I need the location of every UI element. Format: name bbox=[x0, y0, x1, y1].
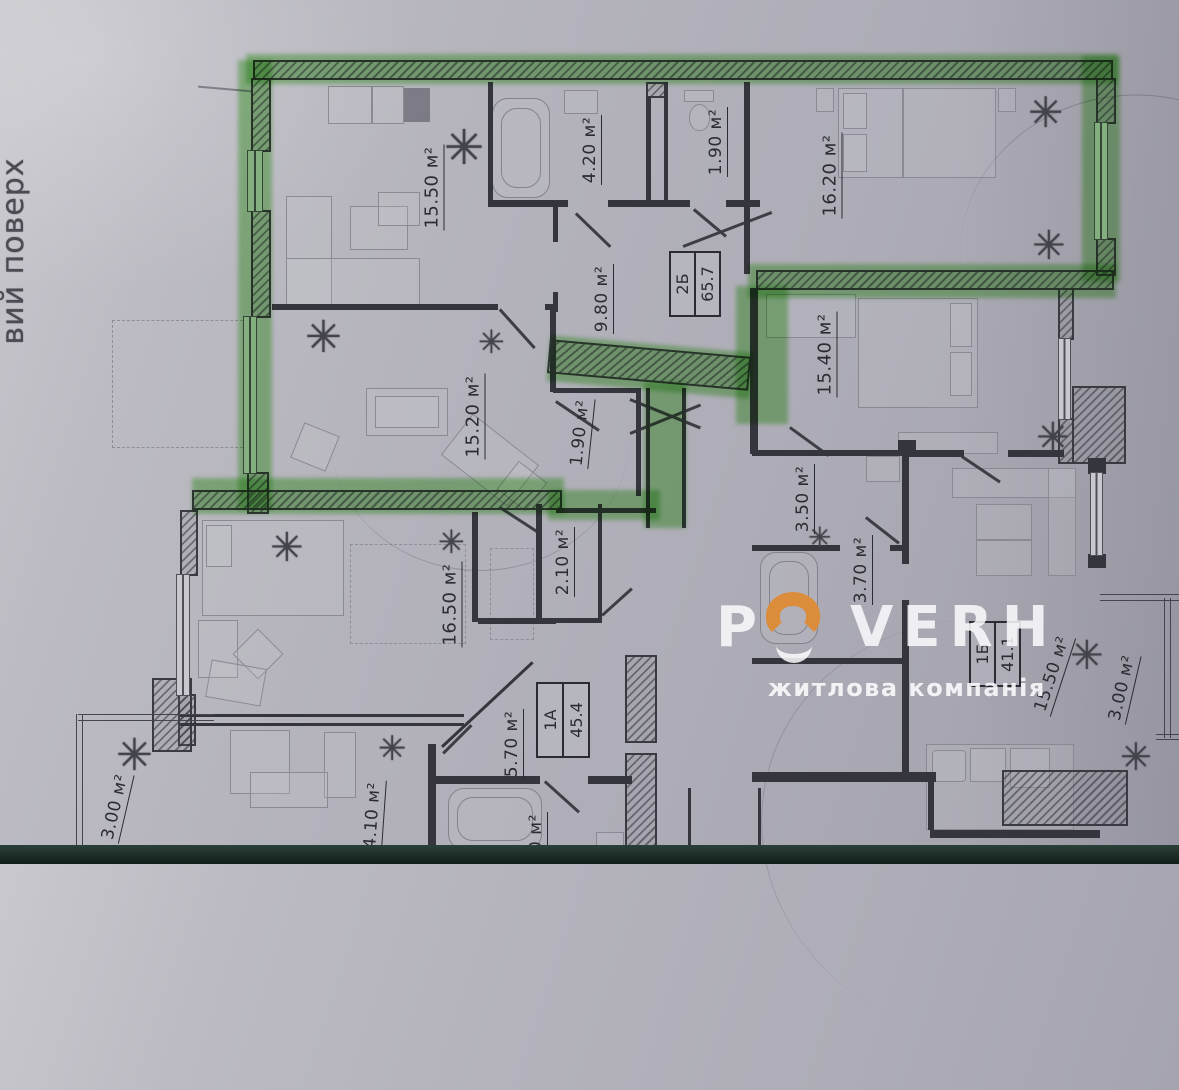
door-line bbox=[544, 780, 580, 813]
pillow bbox=[950, 303, 972, 347]
room-label: 15.50 м² bbox=[422, 128, 443, 248]
wall bbox=[1088, 554, 1106, 568]
room-label: 9.80 м² bbox=[592, 249, 612, 349]
plant-icon: ✳ bbox=[305, 316, 342, 360]
balcony-outline-dashed bbox=[112, 320, 248, 448]
apartment-area: 65.7 bbox=[696, 253, 719, 315]
wall bbox=[902, 442, 909, 564]
room-label: 16.20 м² bbox=[820, 116, 841, 236]
corner-sofa bbox=[1048, 468, 1076, 576]
pillow bbox=[843, 134, 867, 172]
wall bbox=[180, 714, 464, 726]
apartment-unit: 1А bbox=[538, 684, 564, 756]
wall bbox=[488, 82, 493, 204]
pillow bbox=[950, 352, 972, 396]
wall bbox=[898, 440, 916, 456]
balcony-railing bbox=[1156, 734, 1179, 740]
green-highlight bbox=[246, 54, 1118, 84]
armchair bbox=[378, 192, 420, 226]
nightstand bbox=[998, 88, 1016, 112]
side-caption: вий поверх bbox=[0, 86, 32, 416]
wall bbox=[625, 655, 657, 743]
balcony-railing bbox=[78, 714, 214, 721]
wall bbox=[1072, 386, 1126, 464]
room-label: 15.40 м² bbox=[815, 295, 836, 415]
wall bbox=[598, 504, 602, 622]
kitchen-stove bbox=[404, 88, 430, 122]
apartment-area: 45.4 bbox=[564, 684, 588, 756]
room-label: 1.90 м² bbox=[706, 92, 726, 192]
pillow bbox=[843, 93, 867, 129]
room-label: 3.00 м² bbox=[94, 756, 136, 858]
blanket-line bbox=[902, 89, 904, 177]
wall bbox=[478, 618, 556, 624]
room-label: 5.70 м² bbox=[502, 694, 522, 794]
floor-plan-photo: { "photo": { "side_caption": "вий поверх… bbox=[0, 0, 1179, 864]
wall bbox=[930, 830, 1100, 838]
balcony-railing bbox=[76, 714, 83, 864]
plant-icon: ✳ bbox=[1028, 92, 1063, 134]
watermark-letters: VERH bbox=[850, 600, 1058, 656]
green-highlight bbox=[192, 478, 564, 514]
apartment-unit: 2Б bbox=[671, 253, 696, 315]
door-line bbox=[575, 212, 611, 247]
plant-icon: ✳ bbox=[478, 326, 505, 358]
wall bbox=[472, 512, 478, 622]
kitchen-sink bbox=[372, 86, 404, 124]
plant-icon: ✳ bbox=[378, 732, 407, 766]
room-label: 15.20 м² bbox=[463, 357, 484, 477]
wall bbox=[536, 504, 542, 622]
plant-icon: ✳ bbox=[444, 124, 484, 172]
room-label: 2.10 м² bbox=[553, 512, 573, 612]
watermark-tagline: житлова компанія bbox=[768, 674, 1046, 702]
plant-icon: ✳ bbox=[1036, 418, 1070, 458]
wall bbox=[646, 96, 651, 204]
window bbox=[1090, 472, 1103, 556]
balcony-railing bbox=[1164, 598, 1171, 738]
plant-icon: ✳ bbox=[1070, 636, 1104, 676]
wall bbox=[1002, 770, 1128, 826]
pillow bbox=[206, 525, 232, 567]
wall bbox=[752, 772, 936, 782]
wall bbox=[928, 780, 934, 830]
wall bbox=[553, 206, 558, 242]
wall bbox=[272, 304, 498, 310]
sofa bbox=[286, 258, 420, 306]
furniture bbox=[250, 772, 328, 808]
wall bbox=[752, 450, 908, 456]
plant-icon: ✳ bbox=[1032, 226, 1066, 266]
furniture bbox=[324, 732, 356, 798]
green-highlight bbox=[1082, 56, 1120, 282]
green-highlight bbox=[748, 264, 1116, 298]
wall bbox=[744, 82, 750, 274]
wall bbox=[608, 200, 690, 207]
room-label: 16.50 м² bbox=[440, 545, 461, 665]
green-highlight bbox=[238, 60, 272, 510]
paper-highlight bbox=[0, 0, 420, 300]
apartment-tag: 1А 45.4 bbox=[536, 682, 590, 758]
wall bbox=[553, 388, 641, 393]
wall bbox=[664, 82, 668, 204]
wall bbox=[726, 200, 760, 207]
door-line bbox=[601, 588, 632, 617]
wall bbox=[180, 510, 198, 576]
window bbox=[1058, 338, 1071, 420]
bathtub-inner bbox=[457, 797, 533, 841]
kitchen-counter bbox=[328, 86, 372, 124]
watermark-logo-o-icon bbox=[766, 592, 820, 638]
room-label: 4.20 м² bbox=[580, 100, 600, 200]
wall bbox=[588, 776, 632, 784]
bathtub-inner bbox=[501, 108, 541, 188]
washbasin bbox=[866, 456, 900, 482]
room-label: 3.50 м² bbox=[793, 449, 813, 549]
door-line bbox=[683, 211, 773, 247]
photo-edge bbox=[0, 845, 1179, 864]
wall bbox=[636, 392, 641, 496]
apartment-tag: 2Б 65.7 bbox=[669, 251, 721, 317]
door-line bbox=[693, 208, 727, 237]
nightstand bbox=[816, 88, 834, 112]
watermark-letter-p: P bbox=[716, 600, 757, 656]
plant-icon: ✳ bbox=[270, 528, 304, 568]
plant-icon: ✳ bbox=[1120, 738, 1152, 776]
table-divider bbox=[977, 539, 1031, 541]
window bbox=[176, 574, 190, 696]
